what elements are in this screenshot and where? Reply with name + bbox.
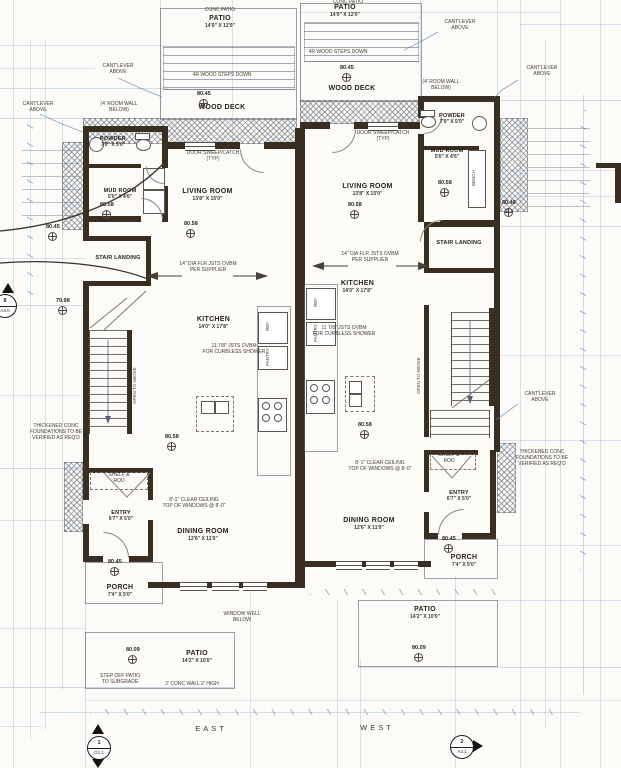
spot-elevation: 79.98 [56, 299, 70, 315]
grade-lines-east [528, 128, 590, 214]
wall [83, 524, 89, 558]
note-bench: BENCH [471, 156, 476, 200]
room-label-landing-east: STAIR LANDING [434, 240, 484, 246]
wall [494, 96, 500, 228]
room-dims: 7'0" X 5'0" [424, 119, 480, 125]
dimension-line [337, 600, 338, 768]
note-door-sweep: DOOR SWEEP/CATCH (TYP) [182, 151, 244, 163]
burner-icon [274, 402, 282, 410]
room-label-powder-east: POWDER7'0" X 5'0" [424, 113, 480, 125]
dimension-line [520, 0, 521, 768]
wall [424, 512, 429, 533]
burner-icon [262, 414, 270, 422]
door-swing [438, 509, 464, 535]
elevation-value: 79.98 [56, 299, 70, 305]
side-hatch-east [500, 118, 528, 212]
room-name: PATIO [390, 606, 460, 614]
benchmark-icon [48, 232, 57, 241]
stairs-east [451, 312, 491, 406]
dimension-line [495, 600, 621, 601]
room-label-porch-west: PORCH7'4" X 5'0" [94, 584, 146, 598]
label-east: EAST [186, 724, 236, 733]
room-name: PATIO [162, 650, 232, 658]
wall [424, 533, 438, 539]
benchmark-icon [110, 567, 119, 576]
room-label-patio-ne: PATIO14'0" X 12'0" [310, 4, 380, 18]
entry-hatch-west [64, 462, 83, 532]
wall [83, 556, 103, 562]
spot-elevation: 80.58 [358, 423, 372, 439]
elevation-value: 80.09 [412, 646, 426, 652]
room-dims: 14'2" X 10'0" [162, 658, 232, 664]
room-label-mud-east: MUD ROOM5'0" X 4'6" [419, 148, 475, 160]
room-name: PATIO [185, 15, 255, 23]
benchmark-icon [199, 99, 208, 108]
elevation-value: 80.45 [197, 92, 211, 98]
room-name: WOOD DECK [310, 85, 394, 93]
room-name: DINING ROOM [330, 517, 408, 525]
floor-plan-sheet: PATIO14'0" X 12'0" PATIO14'0" X 12'0" WO… [0, 0, 621, 768]
spot-elevation: 80.45 [46, 225, 60, 241]
room-name: PORCH [94, 584, 146, 592]
room-name: LIVING ROOM [330, 183, 405, 191]
wall [264, 142, 300, 149]
room-dims: 7'4" X 5'0" [94, 592, 146, 598]
dimension-ticks [310, 589, 500, 595]
note-curbless-shower: 11 7/8" JSTS OVBM FOR CURBLESS SHOWER [310, 326, 378, 338]
benchmark-icon [167, 442, 176, 451]
dimension-line [13, 0, 14, 768]
note-cantilever: CANT'LEVER ABOVE [14, 102, 62, 114]
dimension-line [497, 440, 621, 441]
note-wall-below: (4' ROOM WALL BELOW) [90, 102, 148, 114]
burner-icon [310, 384, 318, 392]
room-name: STAIR LANDING [434, 240, 484, 246]
note-cantilever: CANT'LEVER ABOVE [516, 66, 568, 78]
dimension-line [560, 0, 561, 768]
dimension-line [497, 355, 621, 356]
burner-icon [310, 396, 318, 404]
dimension-line [600, 0, 601, 768]
note-open-to-above: OPEN TO ABOVE [132, 358, 137, 414]
wall [354, 122, 368, 129]
wall [83, 281, 151, 286]
room-name: PORCH [438, 554, 490, 562]
spot-elevation: 80.48 [502, 201, 516, 217]
section-arrow-icon [92, 724, 104, 734]
wall [146, 236, 151, 286]
spot-elevation: 80.09 [412, 646, 426, 662]
note-clear-ceiling: 8'-1" CLEAR CEILING TOP OF WINDOWS @ 8'-… [152, 498, 236, 510]
burner-icon [322, 396, 330, 404]
dimension-line [0, 118, 85, 119]
room-label-patio-se: PATIO14'2" X 10'0" [390, 606, 460, 620]
room-dims: 5'0" X 4'6" [92, 194, 148, 200]
marker-sheet: A3.1 [451, 748, 473, 756]
wall [490, 450, 496, 539]
spot-elevation: 80.58 [438, 181, 452, 197]
wall [462, 533, 496, 539]
note-shelf-rod: SHELF & ROD [428, 453, 470, 465]
benchmark-icon [186, 229, 195, 238]
dimension-line [0, 258, 85, 259]
note-open-to-above: OPEN TO ABOVE [416, 348, 421, 404]
room-name: LIVING ROOM [170, 188, 245, 196]
burner-icon [322, 384, 330, 392]
elevation-value: 80.48 [502, 201, 516, 207]
dimension-line [0, 395, 83, 396]
room-dims: 7'0" X 5'0" [85, 142, 141, 148]
room-dims: 6'7" X 5'0" [434, 496, 484, 502]
note-window-well: WINDOW WELL BELOW [218, 612, 266, 624]
marker-number: 8 [0, 297, 16, 307]
note-cantilever: CANT'LEVER ABOVE [92, 64, 144, 76]
window [212, 582, 239, 591]
note-joists: 14" DIA FLR JSTS OVBM PER SUPPLIER [330, 252, 410, 264]
elevation-value: 80.09 [126, 648, 140, 654]
note-wood-steps: 4R WOOD STEPS DOWN [302, 50, 374, 56]
room-dims: 14'0" X 12'0" [310, 12, 380, 18]
label-west: WEST [352, 723, 402, 732]
dimension-line [0, 726, 42, 727]
section-marker-bottom-left: 1G1.1 [87, 736, 111, 760]
dimension-line [500, 226, 621, 227]
room-name: KITCHEN [320, 280, 395, 288]
wall [303, 561, 336, 567]
benchmark-icon [102, 210, 111, 219]
sink-west [215, 401, 229, 414]
stairs-west [89, 330, 129, 434]
note-cantilever: CANT'LEVER ABOVE [514, 392, 566, 404]
note-wall-below: (4' ROOM WALL BELOW) [412, 80, 470, 92]
benchmark-icon [444, 544, 453, 553]
marker-sheet: G1.1 [88, 749, 110, 757]
note-joists: 14" DIA FLR JSTS OVBM PER SUPPLIER [168, 262, 248, 274]
room-label-wood-deck-west: WOOD DECK [180, 104, 264, 112]
room-dims: 5'0" X 4'6" [419, 154, 475, 160]
room-dims: 14'0" X 12'0" [185, 23, 255, 29]
benchmark-icon [440, 188, 449, 197]
room-label-wood-deck-east: WOOD DECK [310, 85, 394, 93]
room-label-entry-east: ENTRY6'7" X 5'0" [434, 490, 484, 502]
room-label-living-west: LIVING ROOM13'8" X 15'0" [170, 188, 245, 202]
elevation-value: 80.45 [442, 537, 456, 543]
wall [83, 286, 89, 438]
benchmark-icon [360, 430, 369, 439]
section-marker-left: 8A3.0 [0, 294, 17, 318]
wall [168, 142, 185, 149]
wall [148, 468, 153, 500]
note-conc-wall: 2' CONC WALL 2' HIGH [152, 682, 232, 688]
elevation-value: 80.58 [165, 435, 179, 441]
dimension-line [0, 88, 168, 89]
note-door-sweep: DOOR SWEEP/CATCH (TYP) [352, 131, 414, 143]
stairs-east-lower [430, 410, 490, 438]
room-dims: 14'2" X 10'0" [390, 614, 460, 620]
window [336, 561, 362, 570]
note-ref: REF [265, 314, 270, 340]
room-label-kitchen-west: KITCHEN14'0" X 17'8" [176, 316, 251, 330]
note-pantry: PANTRY [265, 347, 270, 367]
dimension-line [0, 68, 95, 69]
room-dims: 13'8" X 15'0" [330, 191, 405, 197]
sink-west [201, 401, 215, 414]
marker-sheet: A3.0 [0, 307, 16, 315]
room-label-powder-west: POWDER7'0" X 5'0" [85, 136, 141, 148]
note-conc-patio: CONC PATIO [318, 0, 378, 6]
dimension-line [0, 45, 163, 46]
room-label-kitchen-east: KITCHEN14'0" X 17'8" [320, 280, 395, 294]
dimension-ticks [90, 709, 560, 715]
wall [418, 96, 500, 102]
wall [148, 582, 180, 588]
marker-number: 1 [88, 739, 110, 749]
elevation-value: 80.58 [438, 181, 452, 187]
section-arrow-icon [2, 283, 14, 293]
refrigerator-west [258, 312, 288, 344]
wall [398, 122, 420, 129]
elevation-value: 80.58 [358, 423, 372, 429]
burner-icon [262, 402, 270, 410]
wall [418, 561, 431, 567]
wall [424, 305, 429, 437]
room-label-dining-west: DINING ROOM12'6" X 11'0" [164, 528, 242, 542]
sink-east [349, 381, 362, 394]
spot-elevation: 80.58 [100, 203, 114, 219]
room-label-dining-east: DINING ROOM12'6" X 11'0" [330, 517, 408, 531]
elevation-value: 80.58 [100, 203, 114, 209]
room-label-landing-west: STAIR LANDING [93, 255, 143, 261]
room-dims: 14'0" X 17'8" [176, 324, 251, 330]
wall [83, 126, 168, 132]
window [243, 582, 267, 591]
burner-icon [274, 414, 282, 422]
note-thickened-foundation: THICKENED CONC FOUNDATIONS TO BE VERIFIE… [28, 424, 84, 441]
adjacent-structure-wall [615, 163, 621, 203]
dimension-line [85, 700, 621, 701]
spot-elevation: 80.09 [126, 648, 140, 664]
room-dims: 7'4" X 5'0" [438, 562, 490, 568]
section-arrow-icon [473, 740, 483, 752]
room-name: KITCHEN [176, 316, 251, 324]
benchmark-icon [58, 306, 67, 315]
room-dims: 14'0" X 17'8" [320, 288, 395, 294]
note-thickened-foundation: THICKENED CONC FOUNDATIONS TO BE VERIFIE… [512, 450, 572, 467]
benchmark-icon [414, 653, 423, 662]
wall [489, 308, 494, 406]
marker-number: 2 [451, 738, 473, 748]
wood-steps-east [304, 22, 419, 62]
room-name: WOOD DECK [180, 104, 264, 112]
section-arrow-icon [92, 759, 104, 768]
window [366, 561, 390, 570]
note-wood-steps: 4R WOOD STEPS DOWN [186, 73, 258, 79]
dimension-line [358, 667, 621, 668]
door-swing [103, 532, 129, 558]
spot-elevation: 80.45 [340, 66, 354, 82]
note-ref: REF [313, 290, 318, 316]
note-shelf-rod: SHELF & ROD [98, 473, 140, 485]
room-label-entry-west: ENTRY6'7" X 5'0" [96, 510, 146, 522]
wall [300, 122, 330, 129]
room-label-patio-sw: PATIO14'2" X 10'0" [162, 650, 232, 664]
wall [424, 268, 494, 273]
elevation-value: 80.45 [108, 560, 122, 566]
note-cantilever: CANT'LEVER ABOVE [434, 20, 486, 32]
note-pantry: PANTRY [313, 323, 318, 343]
wood-steps-west [163, 46, 295, 90]
room-dims: 13'8" X 15'0" [170, 196, 245, 202]
benchmark-icon [350, 210, 359, 219]
window [180, 582, 207, 591]
room-label-patio-nw: PATIO14'0" X 12'0" [185, 15, 255, 29]
wall [129, 556, 153, 562]
note-clear-ceiling: 8'-1" CLEAR CEILING TOP OF WINDOWS @ 8'-… [338, 461, 422, 473]
room-name: STAIR LANDING [93, 255, 143, 261]
elevation-value: 80.58 [184, 222, 198, 228]
dimension-line [0, 628, 85, 629]
dimension-line [497, 545, 621, 546]
note-conc-patio: CONC PATIO [190, 8, 250, 14]
spot-elevation: 80.58 [184, 222, 198, 238]
wall [215, 142, 240, 149]
wood-deck-hatch-east [300, 100, 420, 124]
wall [267, 582, 300, 588]
benchmark-icon [342, 73, 351, 82]
room-label-living-east: LIVING ROOM13'8" X 15'0" [330, 183, 405, 197]
spot-elevation: 80.58 [165, 435, 179, 451]
room-name: DINING ROOM [164, 528, 242, 536]
dimension-line [497, 0, 498, 100]
spot-elevation: 80.45 [108, 560, 122, 576]
grade-lines-west [22, 150, 80, 228]
wall [83, 236, 151, 241]
wall [494, 228, 500, 452]
sink-east [349, 394, 362, 407]
note-curbless-shower: 11 7/8" JSTS OVBM FOR CURBLESS SHOWER [198, 344, 270, 356]
note-step-off-patio: STEP OFF PATIO TO SUBGRADE [92, 674, 148, 686]
dimension-line [520, 24, 621, 25]
wall [89, 164, 141, 168]
section-marker-bottom-right: 2A3.1 [450, 735, 474, 759]
spot-elevation: 80.45 [442, 537, 456, 553]
wall [83, 473, 89, 500]
window [394, 561, 418, 570]
spot-elevation: 80.45 [197, 92, 211, 108]
spot-elevation: 80.58 [348, 203, 362, 219]
room-label-mud-west: MUD ROOM5'0" X 4'6" [92, 188, 148, 200]
elevation-value: 80.45 [340, 66, 354, 72]
elevation-value: 80.58 [348, 203, 362, 209]
room-label-porch-east: PORCH7'4" X 5'0" [438, 554, 490, 568]
elevation-value: 80.45 [46, 225, 60, 231]
room-dims: 12'6" X 11'0" [330, 525, 408, 531]
benchmark-icon [504, 208, 513, 217]
room-dims: 6'7" X 5'0" [96, 516, 146, 522]
benchmark-icon [128, 655, 137, 664]
room-dims: 12'6" X 11'0" [164, 536, 242, 542]
dimension-line [45, 40, 46, 730]
